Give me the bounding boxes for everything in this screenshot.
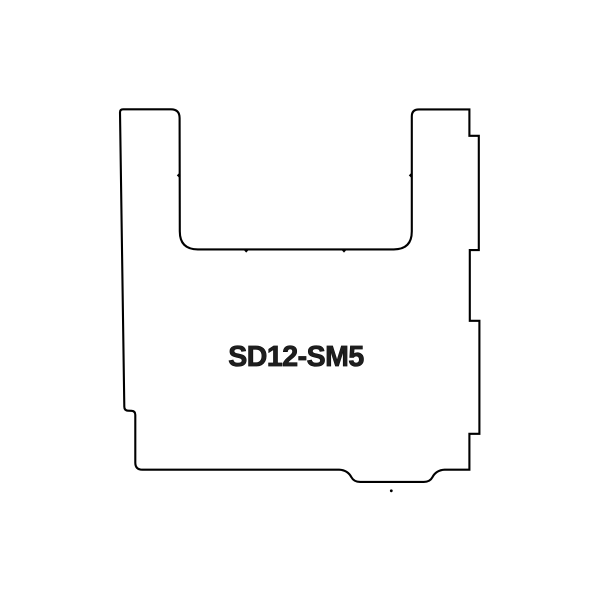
- part-number-label: SD12-SM5: [228, 341, 364, 373]
- notch-ticks: [177, 172, 412, 252]
- right-prong-inner-notch: [409, 172, 412, 178]
- template-outline: [120, 109, 479, 482]
- page-canvas: SD12-SM5: [0, 0, 600, 600]
- template-diagram: SD12-SM5: [0, 0, 600, 600]
- stray-dot: [390, 489, 393, 492]
